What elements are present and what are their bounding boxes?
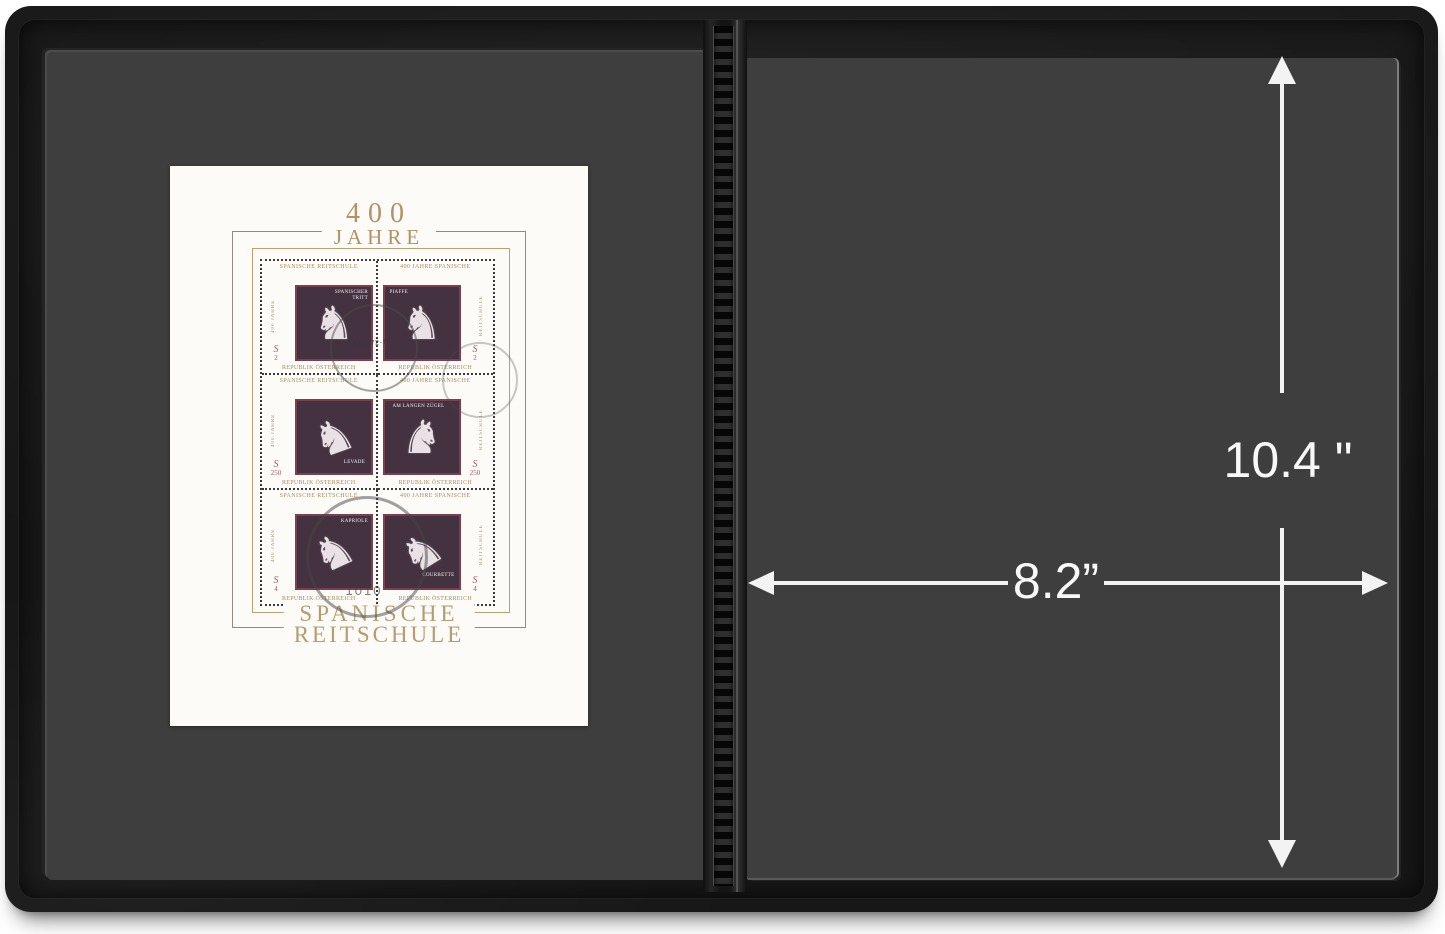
stamp-denomination: S 4 xyxy=(268,577,284,593)
sheet-title-line1: 400 xyxy=(334,200,424,227)
stamp-title: LEVADE xyxy=(344,460,365,466)
album-spine xyxy=(703,20,747,892)
sheet-margin-text: SPANISCHE REITSCHULE xyxy=(262,490,376,499)
sheet-footer-line1: SPANISCHE xyxy=(294,604,465,624)
sheet-margin-text: 400 JAHRE SPANISCHE xyxy=(378,375,494,384)
product-photo-scene: 400 JAHRE SPANISCHE REITSCHULE 400 JAHRE… xyxy=(0,0,1445,934)
sheet-margin-text: REPUBLIK ÖSTERREICH xyxy=(262,480,376,486)
arrow-down-icon xyxy=(1268,840,1296,868)
sheet-margin-text-vertical: 400 JAHRE xyxy=(271,287,276,345)
sheet-margin-text: SPANISCHE REITSCHULE xyxy=(262,261,376,270)
stamp-image: ♞ COURBETTE xyxy=(383,514,461,590)
sheet-margin-text: REPUBLIK ÖSTERREICH xyxy=(378,365,494,371)
stamp-denomination: S 250 xyxy=(467,461,483,477)
currency-symbol: S xyxy=(467,577,483,585)
sheet-margin-text-vertical: REITSCHULE xyxy=(479,516,484,574)
stamp-denomination: S 2 xyxy=(268,346,284,362)
sheet-margin-text-vertical: 400 JAHRE xyxy=(271,401,276,459)
sheet-margin-text: 400 JAHRE SPANISCHE xyxy=(378,261,494,270)
sheet-title: 400 JAHRE xyxy=(322,200,436,247)
stamp-image: ♞ KAPRIOLE xyxy=(295,514,373,590)
sheet-title-line2: JAHRE xyxy=(334,227,424,247)
horse-icon: ♞ xyxy=(313,300,354,346)
arrow-right-icon xyxy=(1362,571,1388,595)
denomination-value: 2 xyxy=(268,354,284,362)
width-dimension-line-right xyxy=(1104,581,1362,585)
stamp-title: SPANISCHER TRITT xyxy=(332,290,368,302)
currency-symbol: S xyxy=(467,461,483,469)
postmark-city-code: 1010 xyxy=(336,583,392,598)
stamp-denomination: S 4 xyxy=(467,577,483,593)
denomination-value: 250 xyxy=(467,469,483,477)
currency-symbol: S xyxy=(467,346,483,354)
height-dimension-label: 10.4 " xyxy=(1224,431,1353,489)
stamp-title: KAPRIOLE xyxy=(341,519,368,525)
sheet-footer-title: SPANISCHE REITSCHULE xyxy=(284,604,475,645)
currency-symbol: S xyxy=(268,346,284,354)
stamp-image: ♞ LEVADE xyxy=(295,399,373,475)
album-page-left: 400 JAHRE SPANISCHE REITSCHULE 400 JAHRE… xyxy=(47,52,711,880)
stamp-cell: 400 JAHRE SPANISCHE REITSCHULE S 4 ♞ COU… xyxy=(378,490,494,604)
denomination-value: 2 xyxy=(467,354,483,362)
stamp-cell: SPANISCHE REITSCHULE 400 JAHRE S 250 ♞ L… xyxy=(262,375,378,489)
horse-icon: ♞ xyxy=(306,522,363,581)
currency-symbol: S xyxy=(268,461,284,469)
stamp-image: ♞ AM LANGEN ZÜGEL xyxy=(383,399,461,475)
height-dimension-line-top xyxy=(1280,82,1284,393)
stamp-cell: 400 JAHRE SPANISCHE REITSCHULE S 250 ♞ A… xyxy=(378,375,494,489)
sheet-margin-text-vertical: REITSCHULE xyxy=(479,287,484,345)
spine-highlight xyxy=(736,20,738,892)
width-dimension-line-left xyxy=(774,581,1008,585)
height-dimension-line-bottom xyxy=(1280,528,1284,840)
stamp-denomination: S 2 xyxy=(467,346,483,362)
sheet-margin-text: 400 JAHRE SPANISCHE xyxy=(378,490,494,499)
sheet-margin-text-vertical: REITSCHULE xyxy=(479,401,484,459)
spine-stitching xyxy=(713,26,734,886)
horse-icon: ♞ xyxy=(401,414,442,460)
stamp-title: AM LANGEN ZÜGEL xyxy=(393,404,445,410)
stamp-cell: SPANISCHE REITSCHULE 400 JAHRE S 2 ♞ SPA… xyxy=(262,261,378,375)
stamp-title: PIAFFE xyxy=(390,290,408,296)
stamp-denomination: S 250 xyxy=(268,461,284,477)
denomination-value: 4 xyxy=(268,585,284,593)
sheet-margin-text: REPUBLIK ÖSTERREICH xyxy=(378,480,494,486)
sheet-margin-text-vertical: 400 JAHRE xyxy=(271,516,276,574)
sheet-footer-line2: REITSCHULE xyxy=(294,624,465,645)
horse-icon: ♞ xyxy=(307,409,361,466)
souvenir-stamp-sheet: 400 JAHRE SPANISCHE REITSCHULE 400 JAHRE… xyxy=(170,166,588,726)
denomination-value: 4 xyxy=(467,585,483,593)
width-dimension-label: 8.2” xyxy=(1013,552,1099,610)
stamp-title: COURBETTE xyxy=(422,573,454,579)
arrow-left-icon xyxy=(748,571,774,595)
sheet-margin-text: REPUBLIK ÖSTERREICH xyxy=(262,365,376,371)
sheet-margin-text: SPANISCHE REITSCHULE xyxy=(262,375,376,384)
stamp-block: SPANISCHE REITSCHULE 400 JAHRE S 2 ♞ SPA… xyxy=(260,259,495,606)
denomination-value: 250 xyxy=(268,469,284,477)
currency-symbol: S xyxy=(268,577,284,585)
stamp-image: ♞ PIAFFE xyxy=(383,285,461,361)
stamp-cell: 400 JAHRE SPANISCHE REITSCHULE S 2 ♞ PIA… xyxy=(378,261,494,375)
arrow-up-icon xyxy=(1268,56,1296,84)
